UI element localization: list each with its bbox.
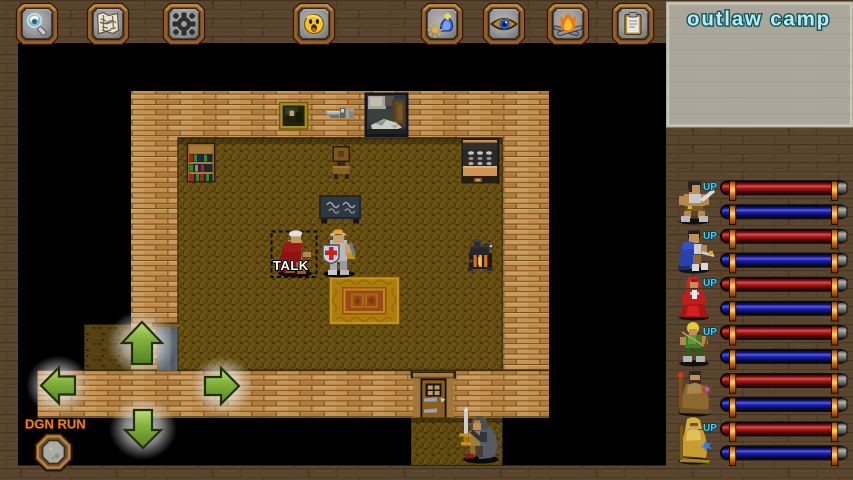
svg-text:DGN RUN: DGN RUN	[25, 417, 86, 432]
svg-text:TALK: TALK	[273, 258, 309, 273]
svg-text:UP: UP	[703, 423, 717, 434]
svg-text:UP: UP	[703, 327, 717, 338]
svg-text:UP: UP	[703, 182, 717, 193]
svg-text:outlaw camp: outlaw camp	[687, 8, 831, 31]
svg-text:UP: UP	[703, 278, 717, 289]
svg-text:UP: UP	[703, 231, 717, 242]
